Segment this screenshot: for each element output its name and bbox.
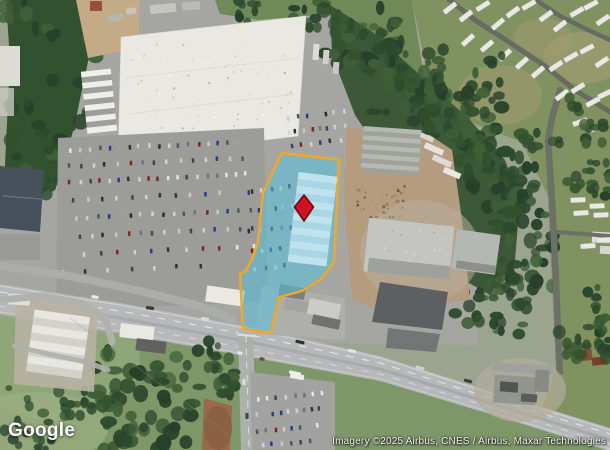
warehouse-east — [451, 229, 500, 275]
south-parking — [250, 372, 335, 450]
bigbox-store-roof — [118, 16, 306, 158]
trailer-park-road — [447, 0, 610, 112]
north-pavement — [0, 0, 478, 345]
top-grass — [215, 0, 430, 115]
corner-store — [205, 285, 245, 306]
dark-asphalt-lot — [372, 282, 448, 330]
warehouse-ridged-roof — [360, 126, 421, 176]
dirt-patch — [202, 398, 232, 450]
highway — [0, 284, 610, 450]
google-logo[interactable]: Google — [8, 420, 75, 442]
aerial-imagery — [0, 0, 610, 450]
forest-middle — [330, 5, 520, 295]
dark-roof-building — [0, 166, 44, 232]
strip-building-west — [0, 46, 20, 86]
industrial-yard — [344, 128, 470, 310]
storage-building — [26, 309, 90, 378]
south-road — [238, 332, 257, 450]
parcel-highlight[interactable] — [240, 153, 339, 333]
warehouse-large — [363, 218, 454, 281]
south-grass — [0, 316, 610, 450]
canopy-building — [119, 323, 154, 341]
loading-dock-stripes — [81, 69, 117, 134]
mobile-park-ground — [412, 0, 610, 450]
dirt-area-top — [76, 0, 140, 58]
satellite-map[interactable]: Google Imagery ©2025 Airbus, CNES / Airb… — [0, 0, 610, 450]
main-parking-lot — [56, 128, 268, 310]
map-attribution: Imagery ©2025 Airbus, CNES / Airbus, Max… — [332, 436, 606, 447]
side-road-east — [548, 90, 560, 372]
forest-topleft — [4, 0, 98, 206]
access-road — [0, 266, 232, 319]
